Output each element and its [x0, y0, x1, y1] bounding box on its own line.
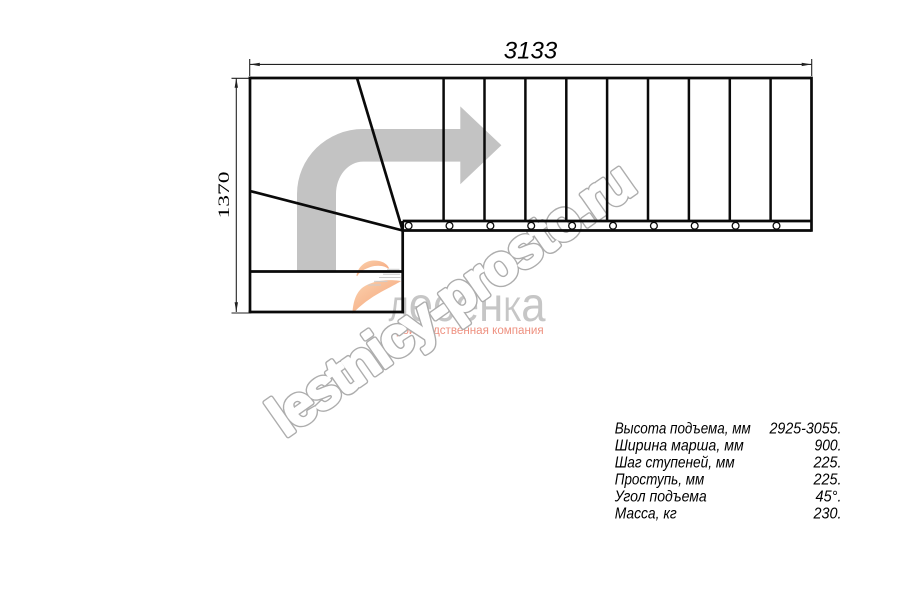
svg-text:Угол подъема: Угол подъема [614, 489, 707, 506]
svg-text:Высота подъема, мм: Высота подъема, мм [615, 420, 751, 437]
svg-text:225.: 225. [813, 455, 842, 472]
svg-text:45°.: 45°. [816, 489, 842, 506]
svg-text:225.: 225. [813, 472, 842, 489]
svg-text:900.: 900. [815, 438, 842, 455]
svg-text:230.: 230. [813, 506, 842, 523]
svg-text:Ширина марша, мм: Ширина марша, мм [615, 438, 744, 455]
svg-text:1370: 1370 [216, 171, 233, 218]
svg-text:Проступь, мм: Проступь, мм [615, 472, 705, 489]
svg-text:Шаг ступеней, мм: Шаг ступеней, мм [615, 455, 735, 472]
svg-text:3133: 3133 [504, 38, 558, 65]
svg-text:2925-3055.: 2925-3055. [769, 420, 842, 437]
svg-text:Масса, кг: Масса, кг [615, 506, 677, 523]
